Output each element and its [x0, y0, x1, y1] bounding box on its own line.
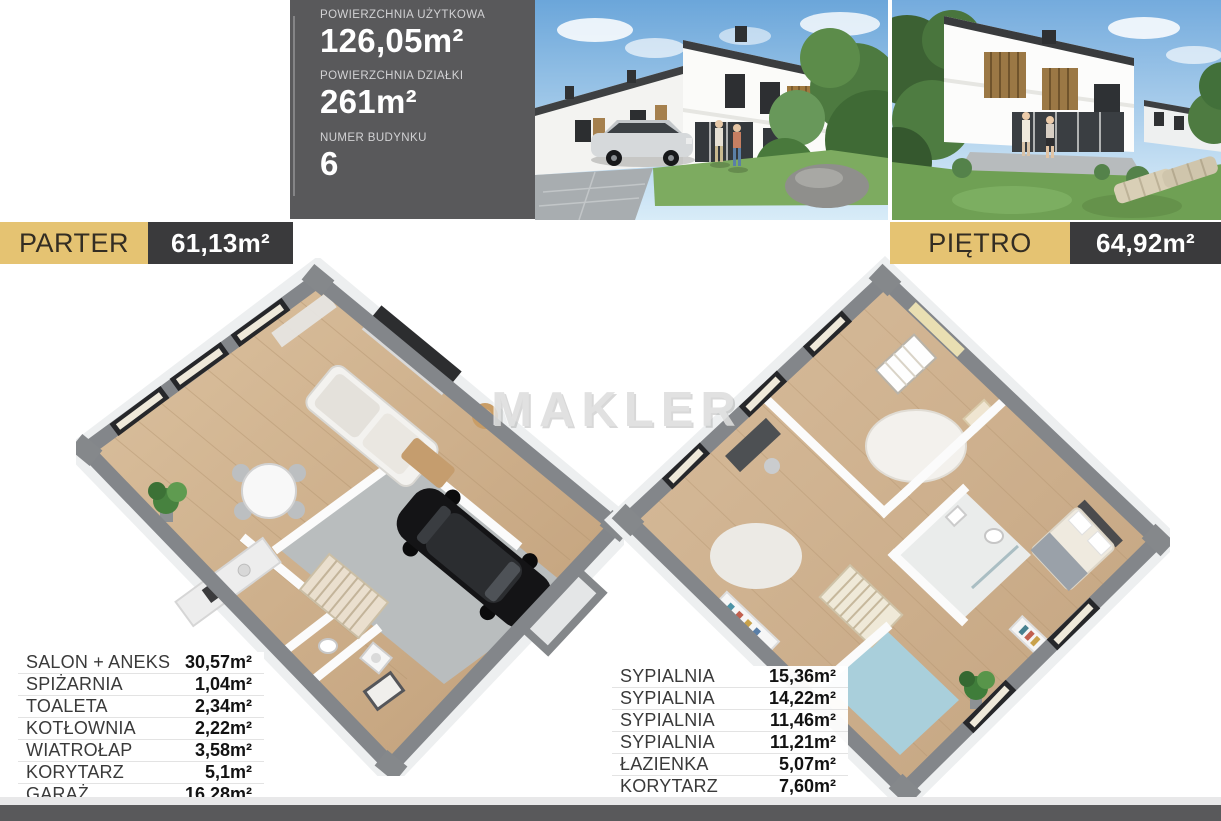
- room-area: 5,07m²: [779, 754, 836, 775]
- pietro-banner-title: PIĘTRO: [890, 222, 1070, 264]
- room-row: ŁAZIENKA 5,07m²: [612, 754, 848, 776]
- room-row: SYPIALNIA 11,46m²: [612, 710, 848, 732]
- pietro-banner-area: 64,92m²: [1070, 222, 1221, 264]
- room-name: SALON + ANEKS: [26, 652, 170, 673]
- property-info-panel: POWIERZCHNIA UŻYTKOWA 126,05m² POWIERZCH…: [290, 0, 535, 219]
- room-row: SYPIALNIA 15,36m²: [612, 666, 848, 688]
- room-name: TOALETA: [26, 696, 108, 717]
- plot-area-label: POWIERZCHNIA DZIAŁKI: [320, 70, 529, 82]
- usable-area-item: POWIERZCHNIA UŻYTKOWA 126,05m²: [320, 9, 529, 58]
- parter-banner-area: 61,13m²: [148, 222, 293, 264]
- room-area: 11,46m²: [770, 710, 836, 731]
- parter-banner: PARTER 61,13m²: [0, 222, 293, 264]
- bedroom-rug: [710, 523, 802, 589]
- building-number-item: NUMER BUDYNKU 6: [320, 132, 529, 181]
- room-row: WIATROŁAP 3,58m²: [18, 740, 264, 762]
- footer-light-strip: [0, 797, 1221, 805]
- room-row: KORYTARZ 5,1m²: [18, 762, 264, 784]
- room-name: KORYTARZ: [620, 776, 718, 797]
- room-area: 2,34m²: [195, 696, 252, 717]
- boulder-highlight: [795, 168, 843, 188]
- room-name: SPIŻARNIA: [26, 674, 123, 695]
- pietro-room-list: SYPIALNIA 15,36m² SYPIALNIA 14,22m² SYPI…: [612, 666, 848, 798]
- room-area: 2,22m²: [195, 718, 252, 739]
- plot-area-value: 261m²: [320, 85, 529, 119]
- room-name: SYPIALNIA: [620, 710, 715, 731]
- room-name: SYPIALNIA: [620, 732, 715, 753]
- panel-accent-line: [293, 16, 295, 196]
- usable-area-value: 126,05m²: [320, 24, 529, 58]
- usable-area-label: POWIERZCHNIA UŻYTKOWA: [320, 9, 529, 21]
- room-name: KORYTARZ: [26, 762, 124, 783]
- room-row: SYPIALNIA 11,21m²: [612, 732, 848, 754]
- desk-chair: [764, 458, 780, 474]
- pietro-banner: PIĘTRO 64,92m²: [890, 222, 1221, 264]
- room-area: 5,1m²: [205, 762, 252, 783]
- room-name: WIATROŁAP: [26, 740, 132, 761]
- listing-graphic: POWIERZCHNIA UŻYTKOWA 126,05m² POWIERZCH…: [0, 0, 1221, 821]
- room-area: 1,04m²: [195, 674, 252, 695]
- plot-area-item: POWIERZCHNIA DZIAŁKI 261m²: [320, 70, 529, 119]
- street-elevation-photo: [535, 0, 888, 220]
- room-row: SALON + ANEKS 30,57m²: [18, 652, 264, 674]
- room-area: 3,58m²: [195, 740, 252, 761]
- lawn-light-patch: [952, 186, 1072, 214]
- building-number-label: NUMER BUDYNKU: [320, 132, 529, 144]
- room-area: 7,60m²: [779, 776, 836, 797]
- room-name: KOTŁOWNIA: [26, 718, 136, 739]
- parter-room-list: SALON + ANEKS 30,57m² SPIŻARNIA 1,04m² T…: [18, 652, 264, 806]
- room-area: 11,21m²: [770, 732, 836, 753]
- dining-set: [232, 464, 306, 520]
- room-row: KORYTARZ 7,60m²: [612, 776, 848, 798]
- room-name: SYPIALNIA: [620, 688, 715, 709]
- room-area: 14,22m²: [769, 688, 836, 709]
- room-row: KOTŁOWNIA 2,22m²: [18, 718, 264, 740]
- room-row: TOALETA 2,34m²: [18, 696, 264, 718]
- parter-banner-title: PARTER: [0, 222, 148, 264]
- footer-dark-bar: [0, 805, 1221, 821]
- room-area: 30,57m²: [185, 652, 252, 673]
- room-name: ŁAZIENKA: [620, 754, 709, 775]
- room-row: SPIŻARNIA 1,04m²: [18, 674, 264, 696]
- room-name: SYPIALNIA: [620, 666, 715, 687]
- garden-elevation-photo: [890, 0, 1221, 220]
- room-area: 15,36m²: [769, 666, 836, 687]
- makler-watermark: MAKLER: [452, 382, 782, 438]
- building-number-value: 6: [320, 147, 529, 181]
- room-row: SYPIALNIA 14,22m²: [612, 688, 848, 710]
